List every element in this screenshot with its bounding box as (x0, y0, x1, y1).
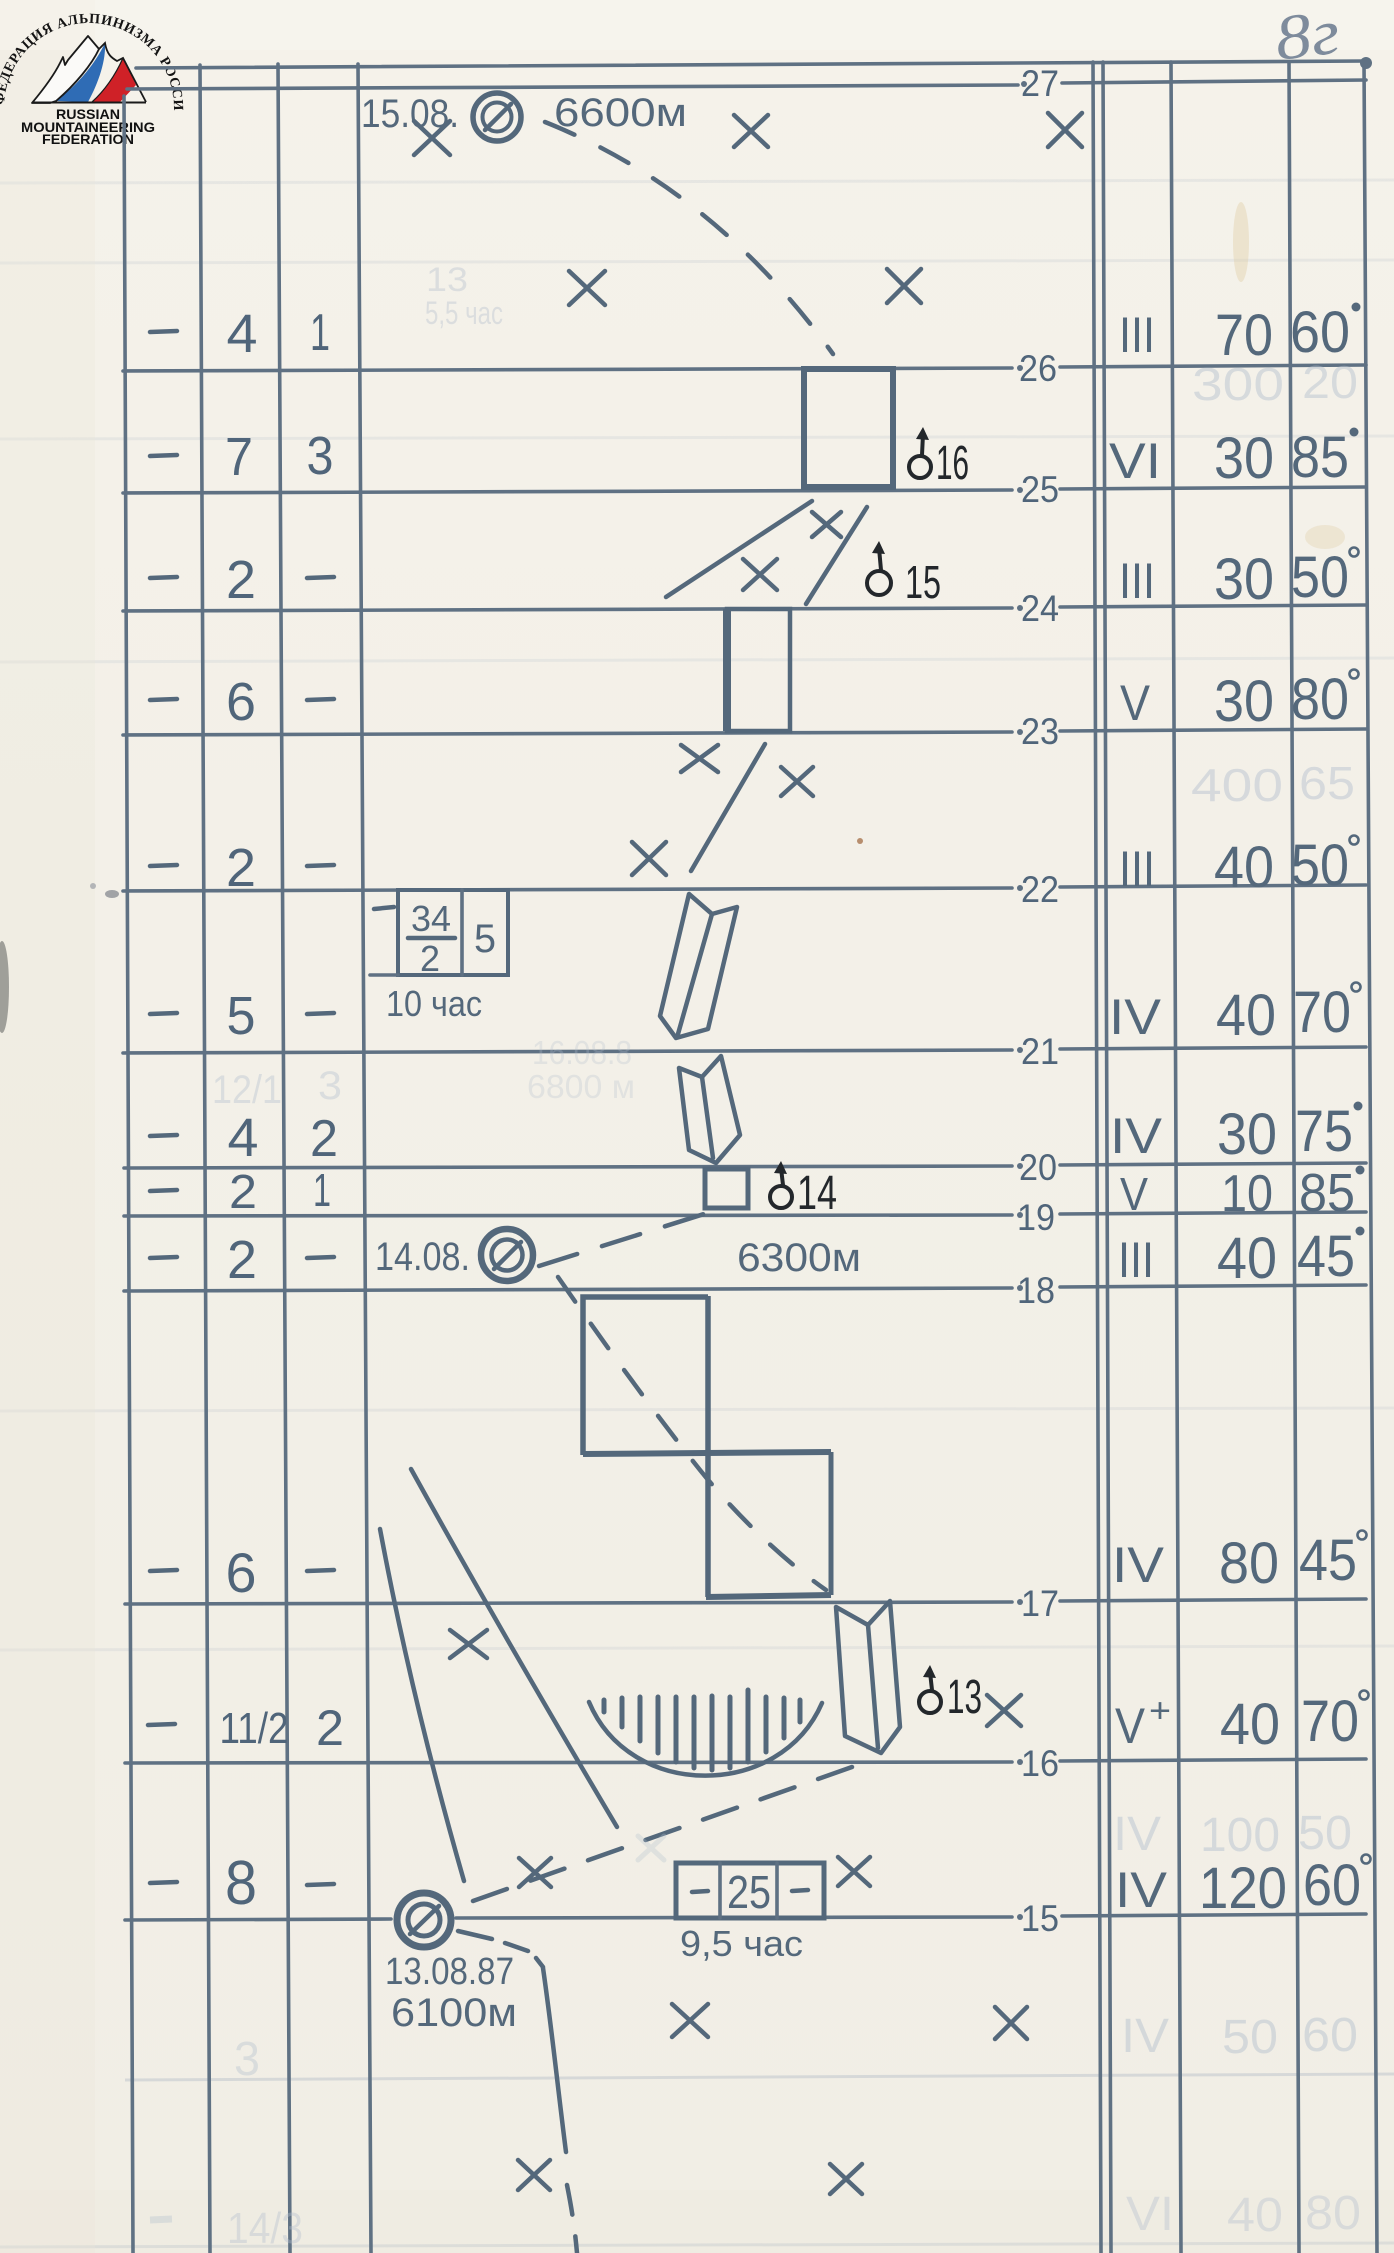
svg-text:13: 13 (426, 261, 468, 299)
svg-text:14.08.: 14.08. (375, 1235, 470, 1279)
svg-text:VI: VI (1126, 2188, 1174, 2241)
svg-text:80: 80 (1305, 2187, 1361, 2240)
svg-text:15: 15 (1021, 1898, 1059, 1939)
svg-text:25: 25 (727, 1866, 771, 1918)
svg-text:300: 300 (1192, 358, 1284, 410)
svg-text:13.08.87: 13.08.87 (385, 1951, 514, 1993)
svg-text:34: 34 (411, 898, 451, 939)
svg-text:10: 10 (1221, 1165, 1273, 1223)
svg-text:14: 14 (797, 1167, 837, 1220)
svg-text:80: 80 (1219, 1531, 1279, 1596)
svg-text:3: 3 (234, 2033, 260, 2086)
svg-text:70: 70 (1301, 1689, 1359, 1754)
svg-text:50: 50 (1298, 1807, 1352, 1860)
svg-text:7: 7 (225, 427, 253, 487)
svg-text:2: 2 (316, 1700, 344, 1756)
svg-text:V: V (1115, 1698, 1146, 1754)
svg-text:22: 22 (1021, 869, 1059, 910)
svg-text:40: 40 (1227, 2189, 1283, 2242)
svg-text:17: 17 (1021, 1583, 1059, 1624)
svg-text:IV: IV (1109, 989, 1162, 1045)
svg-text:1: 1 (310, 304, 330, 362)
svg-text:16: 16 (936, 437, 969, 490)
svg-text:80: 80 (1291, 667, 1349, 732)
svg-text:4: 4 (227, 304, 258, 364)
svg-text:5: 5 (474, 917, 496, 961)
svg-text:3: 3 (307, 426, 334, 486)
svg-text:6: 6 (226, 672, 256, 732)
svg-text:6: 6 (226, 1541, 257, 1604)
svg-text:30: 30 (1217, 1102, 1277, 1167)
svg-text:26: 26 (1019, 348, 1057, 389)
svg-text:6100м: 6100м (391, 1991, 517, 2035)
svg-text:8: 8 (225, 1849, 257, 1918)
svg-text:III: III (1119, 307, 1155, 363)
svg-text:120: 120 (1199, 1856, 1287, 1921)
svg-text:15: 15 (905, 556, 941, 608)
svg-text:III: III (1118, 1232, 1154, 1288)
svg-text:75: 75 (1295, 1099, 1353, 1164)
svg-text:2: 2 (229, 1166, 257, 1219)
svg-text:40: 40 (1217, 1226, 1277, 1291)
svg-text:65: 65 (1299, 757, 1355, 809)
svg-text:18: 18 (1017, 1270, 1055, 1311)
svg-text:40: 40 (1220, 1692, 1280, 1757)
svg-text:50: 50 (1222, 2011, 1278, 2064)
svg-text:45: 45 (1299, 1528, 1357, 1593)
svg-text:IV: IV (1115, 1862, 1168, 1918)
svg-text:25: 25 (1021, 469, 1059, 510)
svg-text:12/1: 12/1 (212, 1068, 282, 1112)
svg-text:IV: IV (1112, 1537, 1165, 1593)
svg-text:16.08.8: 16.08.8 (532, 1034, 632, 1071)
svg-text:30: 30 (1214, 547, 1274, 612)
svg-text:100: 100 (1200, 1809, 1280, 1862)
svg-text:21: 21 (1021, 1031, 1059, 1072)
svg-text:19: 19 (1017, 1197, 1055, 1238)
svg-text:23: 23 (1021, 711, 1059, 752)
svg-text:4: 4 (228, 1108, 259, 1168)
svg-text:2: 2 (226, 838, 256, 898)
svg-text:85: 85 (1299, 1163, 1355, 1223)
svg-text:2: 2 (310, 1110, 338, 1168)
svg-text:400: 400 (1191, 759, 1283, 811)
svg-text:30: 30 (1214, 426, 1274, 491)
svg-text:20: 20 (1019, 1147, 1057, 1188)
svg-text:V: V (1120, 1168, 1148, 1220)
svg-text:60: 60 (1302, 2009, 1358, 2062)
svg-text:III: III (1119, 553, 1155, 609)
svg-text:2: 2 (227, 1230, 257, 1290)
svg-text:9,5 час: 9,5 час (680, 1923, 803, 1964)
svg-text:24: 24 (1021, 588, 1059, 629)
svg-text:2: 2 (226, 550, 256, 610)
svg-text:IV: IV (1110, 1108, 1163, 1164)
svg-text:14/3: 14/3 (227, 2204, 303, 2253)
svg-text:27: 27 (1021, 63, 1059, 104)
svg-text:FEDERATION: FEDERATION (42, 131, 134, 147)
svg-text:10 час: 10 час (386, 983, 482, 1024)
svg-text:11/2: 11/2 (220, 1704, 289, 1753)
svg-text:+: + (1149, 1692, 1171, 1730)
svg-text:6300м: 6300м (737, 1236, 861, 1280)
svg-text:IV: IV (1113, 1808, 1161, 1861)
svg-text:VI: VI (1109, 433, 1161, 489)
svg-text:85: 85 (1291, 425, 1349, 490)
svg-text:45: 45 (1297, 1224, 1355, 1289)
svg-text:5,5 час: 5,5 час (425, 295, 503, 331)
svg-text:50: 50 (1291, 545, 1349, 610)
svg-text:III: III (1119, 841, 1155, 897)
svg-text:13: 13 (947, 1671, 982, 1724)
svg-text:5: 5 (227, 986, 256, 1046)
svg-text:40: 40 (1214, 835, 1274, 900)
svg-text:16: 16 (1021, 1743, 1059, 1784)
svg-text:1: 1 (313, 1164, 331, 1216)
svg-text:6800 м: 6800 м (527, 1068, 635, 1105)
svg-text:70: 70 (1293, 980, 1351, 1045)
svg-text:40: 40 (1216, 983, 1276, 1048)
svg-text:6600м: 6600м (554, 91, 687, 135)
svg-text:IV: IV (1121, 2010, 1169, 2063)
svg-text:20: 20 (1302, 356, 1358, 408)
svg-text:30: 30 (1214, 669, 1274, 734)
svg-text:60: 60 (1303, 1853, 1361, 1918)
svg-text:2: 2 (420, 938, 440, 979)
svg-text:3: 3 (318, 1064, 342, 1108)
svg-text:V: V (1120, 675, 1151, 731)
svg-text:50: 50 (1291, 833, 1349, 898)
